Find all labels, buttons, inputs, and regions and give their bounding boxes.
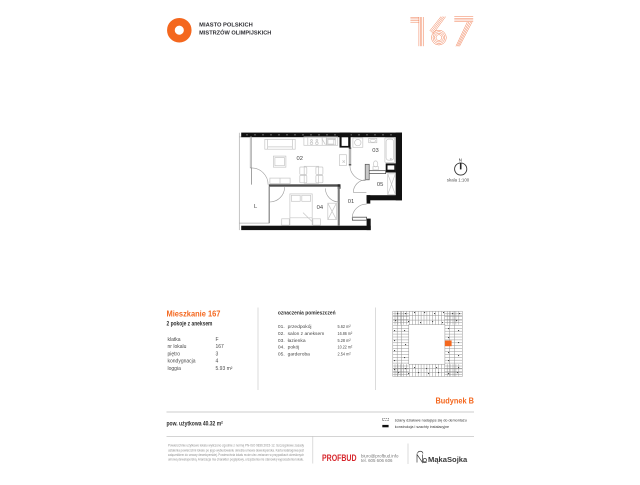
svg-text:nr lokalu: nr lokalu	[168, 344, 187, 350]
svg-text:2.54 m²: 2.54 m²	[338, 351, 351, 357]
svg-text:5.62 m²: 5.62 m²	[338, 324, 351, 330]
svg-text:2 pokoje z aneksem: 2 pokoje z aneksem	[167, 321, 213, 328]
svg-text:przedpokój: przedpokój	[288, 324, 312, 330]
svg-text:02: 02	[297, 156, 303, 162]
svg-text:klatka: klatka	[168, 337, 181, 343]
svg-text:05: 05	[377, 182, 383, 188]
svg-text:4: 4	[216, 359, 219, 365]
svg-text:02.: 02.	[278, 331, 285, 337]
svg-text:04: 04	[317, 205, 324, 211]
svg-text:Mieszkanie 167: Mieszkanie 167	[167, 308, 221, 318]
svg-text:tel. 605 606 606: tel. 605 606 606	[361, 458, 393, 463]
svg-text:kondygnacja: kondygnacja	[168, 359, 196, 365]
svg-text:04.: 04.	[278, 345, 285, 351]
svg-text:01.: 01.	[278, 324, 285, 330]
svg-text:F: F	[216, 337, 219, 343]
svg-text:MąkaSojka: MąkaSojka	[428, 455, 468, 464]
svg-text:umową deweloperską. Aranżacja: umową deweloperską. Aranżacja ma charakt…	[168, 458, 304, 462]
svg-text:10.22 m²: 10.22 m²	[338, 345, 353, 351]
svg-text:01: 01	[348, 199, 354, 205]
svg-text:łazienka: łazienka	[288, 338, 306, 344]
svg-text:skala 1:100: skala 1:100	[447, 178, 470, 183]
svg-text:konstrukcja i szachty instalac: konstrukcja i szachty instalacyjne	[395, 425, 449, 429]
svg-text:Budynek B: Budynek B	[436, 395, 474, 405]
svg-text:16.86 m²: 16.86 m²	[338, 331, 353, 337]
svg-text:167: 167	[216, 344, 225, 350]
svg-text:garderoba: garderoba	[288, 351, 311, 357]
svg-text:MIASTO POLSKICH: MIASTO POLSKICH	[199, 23, 253, 29]
svg-text:piętro: piętro	[168, 351, 181, 357]
svg-text:salon z aneksem: salon z aneksem	[288, 331, 325, 337]
svg-text:Powierzchnie użytkowe lokalu w: Powierzchnie użytkowe lokalu wyliczono z…	[168, 444, 304, 448]
svg-text:03.: 03.	[278, 338, 285, 344]
svg-text:załącznikiem do umowy dewelope: załącznikiem do umowy deweloperskiej. Po…	[168, 453, 304, 457]
svg-text:05.: 05.	[278, 351, 285, 357]
svg-text:pokój: pokój	[288, 345, 300, 351]
svg-text:N: N	[459, 158, 462, 163]
svg-text:5.28 m²: 5.28 m²	[338, 338, 351, 344]
svg-text:ściany działowe nadające się d: ściany działowe nadające się do demontaż…	[395, 418, 467, 422]
svg-text:3: 3	[216, 351, 219, 357]
svg-text:5.93 m²: 5.93 m²	[216, 366, 233, 372]
svg-text:03: 03	[372, 148, 378, 154]
svg-text:ustalenia powierzchni lokalu p: ustalenia powierzchni lokalu po jego wyb…	[168, 448, 304, 452]
svg-text:oznaczenia pomieszczeń: oznaczenia pomieszczeń	[278, 310, 336, 316]
svg-text:pow. użytkowa 40.32 m²: pow. użytkowa 40.32 m²	[167, 421, 223, 428]
svg-text:loggia: loggia	[168, 366, 182, 372]
svg-text:MISTRZÓW OLIMPIJSKICH: MISTRZÓW OLIMPIJSKICH	[199, 28, 271, 36]
svg-text:PROFBUD: PROFBUD	[322, 453, 357, 464]
